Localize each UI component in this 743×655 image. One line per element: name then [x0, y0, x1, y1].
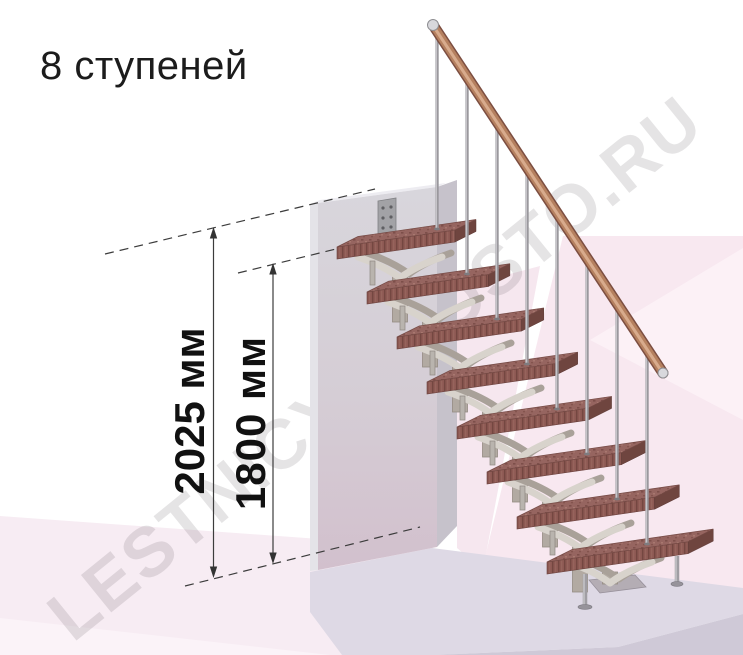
tread-connector — [550, 531, 555, 555]
baluster-base — [494, 318, 500, 321]
wall-left-edge — [310, 203, 318, 571]
baluster-base — [464, 273, 470, 276]
leg-foot — [578, 605, 592, 610]
dimension-label-top-tread: 1800 мм — [227, 336, 275, 510]
scene — [0, 0, 743, 655]
baluster-base — [644, 543, 650, 546]
leg-foot — [671, 582, 683, 587]
tread-connector — [490, 441, 495, 465]
tread-connector — [460, 396, 465, 420]
baluster-base — [584, 453, 590, 456]
baluster-base — [554, 408, 560, 411]
handrail-cap-bottom — [658, 368, 668, 378]
staircase-diagram: LESTNICY-PROSTO.RU — [0, 0, 743, 655]
tread-connector — [400, 306, 405, 330]
page-title: 8 ступеней — [40, 44, 248, 89]
tread-connector — [520, 486, 525, 510]
tread-connector — [370, 261, 375, 285]
baluster-base — [434, 228, 440, 231]
baluster-base — [524, 363, 530, 366]
handrail-cap-top — [428, 20, 439, 31]
dimension-label-total-height: 2025 мм — [166, 327, 214, 494]
baluster-base — [614, 498, 620, 501]
tread-connector — [430, 351, 435, 375]
